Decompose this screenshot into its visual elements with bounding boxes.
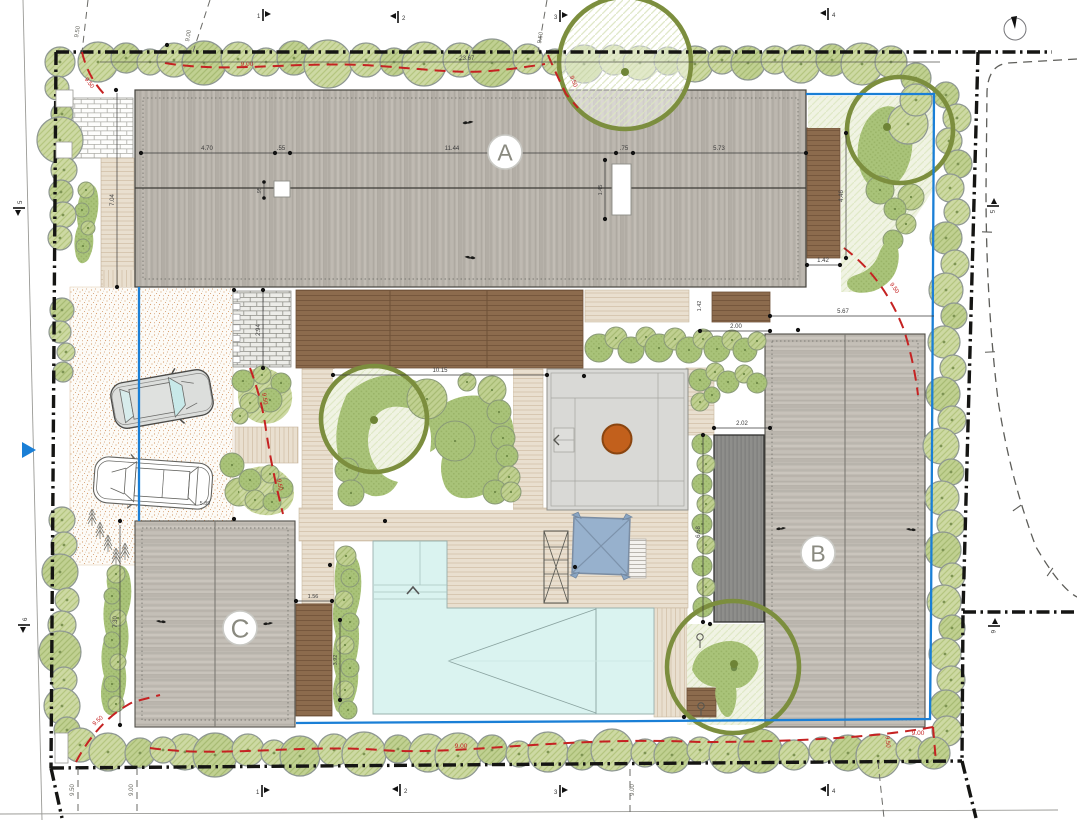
svg-text:4.46: 4.46 bbox=[839, 190, 845, 202]
svg-text:4.70: 4.70 bbox=[201, 146, 213, 152]
svg-text:7.30: 7.30 bbox=[113, 616, 119, 628]
svg-text:9.50: 9.50 bbox=[70, 784, 76, 796]
svg-text:.75: .75 bbox=[620, 146, 629, 152]
svg-text:9.00: 9.00 bbox=[912, 730, 925, 737]
svg-text:6.68: 6.68 bbox=[696, 526, 702, 538]
svg-text:.95: .95 bbox=[257, 187, 263, 194]
svg-text:1.42: 1.42 bbox=[817, 258, 829, 264]
svg-text:1.45: 1.45 bbox=[598, 185, 604, 196]
svg-text:2.00: 2.00 bbox=[730, 324, 742, 330]
svg-text:5.67: 5.67 bbox=[837, 309, 849, 315]
svg-text:9.50: 9.50 bbox=[883, 736, 890, 749]
svg-text:1.56: 1.56 bbox=[308, 594, 319, 600]
svg-text:- 23.67: - 23.67 bbox=[456, 56, 475, 62]
svg-text:11.44: 11.44 bbox=[445, 146, 460, 152]
svg-text:2.94: 2.94 bbox=[256, 324, 262, 336]
svg-text:.55: .55 bbox=[277, 146, 286, 152]
svg-text:3.92: 3.92 bbox=[333, 655, 339, 666]
svg-text:C: C bbox=[231, 613, 250, 643]
svg-text:9.00: 9.00 bbox=[630, 784, 636, 796]
svg-text:A: A bbox=[497, 139, 513, 165]
svg-text:7.04: 7.04 bbox=[110, 194, 116, 206]
svg-text:2.02: 2.02 bbox=[736, 421, 748, 427]
svg-text:10.15: 10.15 bbox=[432, 368, 448, 374]
svg-text:B: B bbox=[810, 540, 825, 566]
svg-text:1.42: 1.42 bbox=[697, 301, 703, 312]
svg-text:5.89: 5.89 bbox=[200, 501, 211, 507]
svg-text:9.00: 9.00 bbox=[455, 743, 468, 750]
svg-text:9.00: 9.00 bbox=[129, 784, 135, 796]
svg-text:5.73: 5.73 bbox=[713, 146, 725, 152]
